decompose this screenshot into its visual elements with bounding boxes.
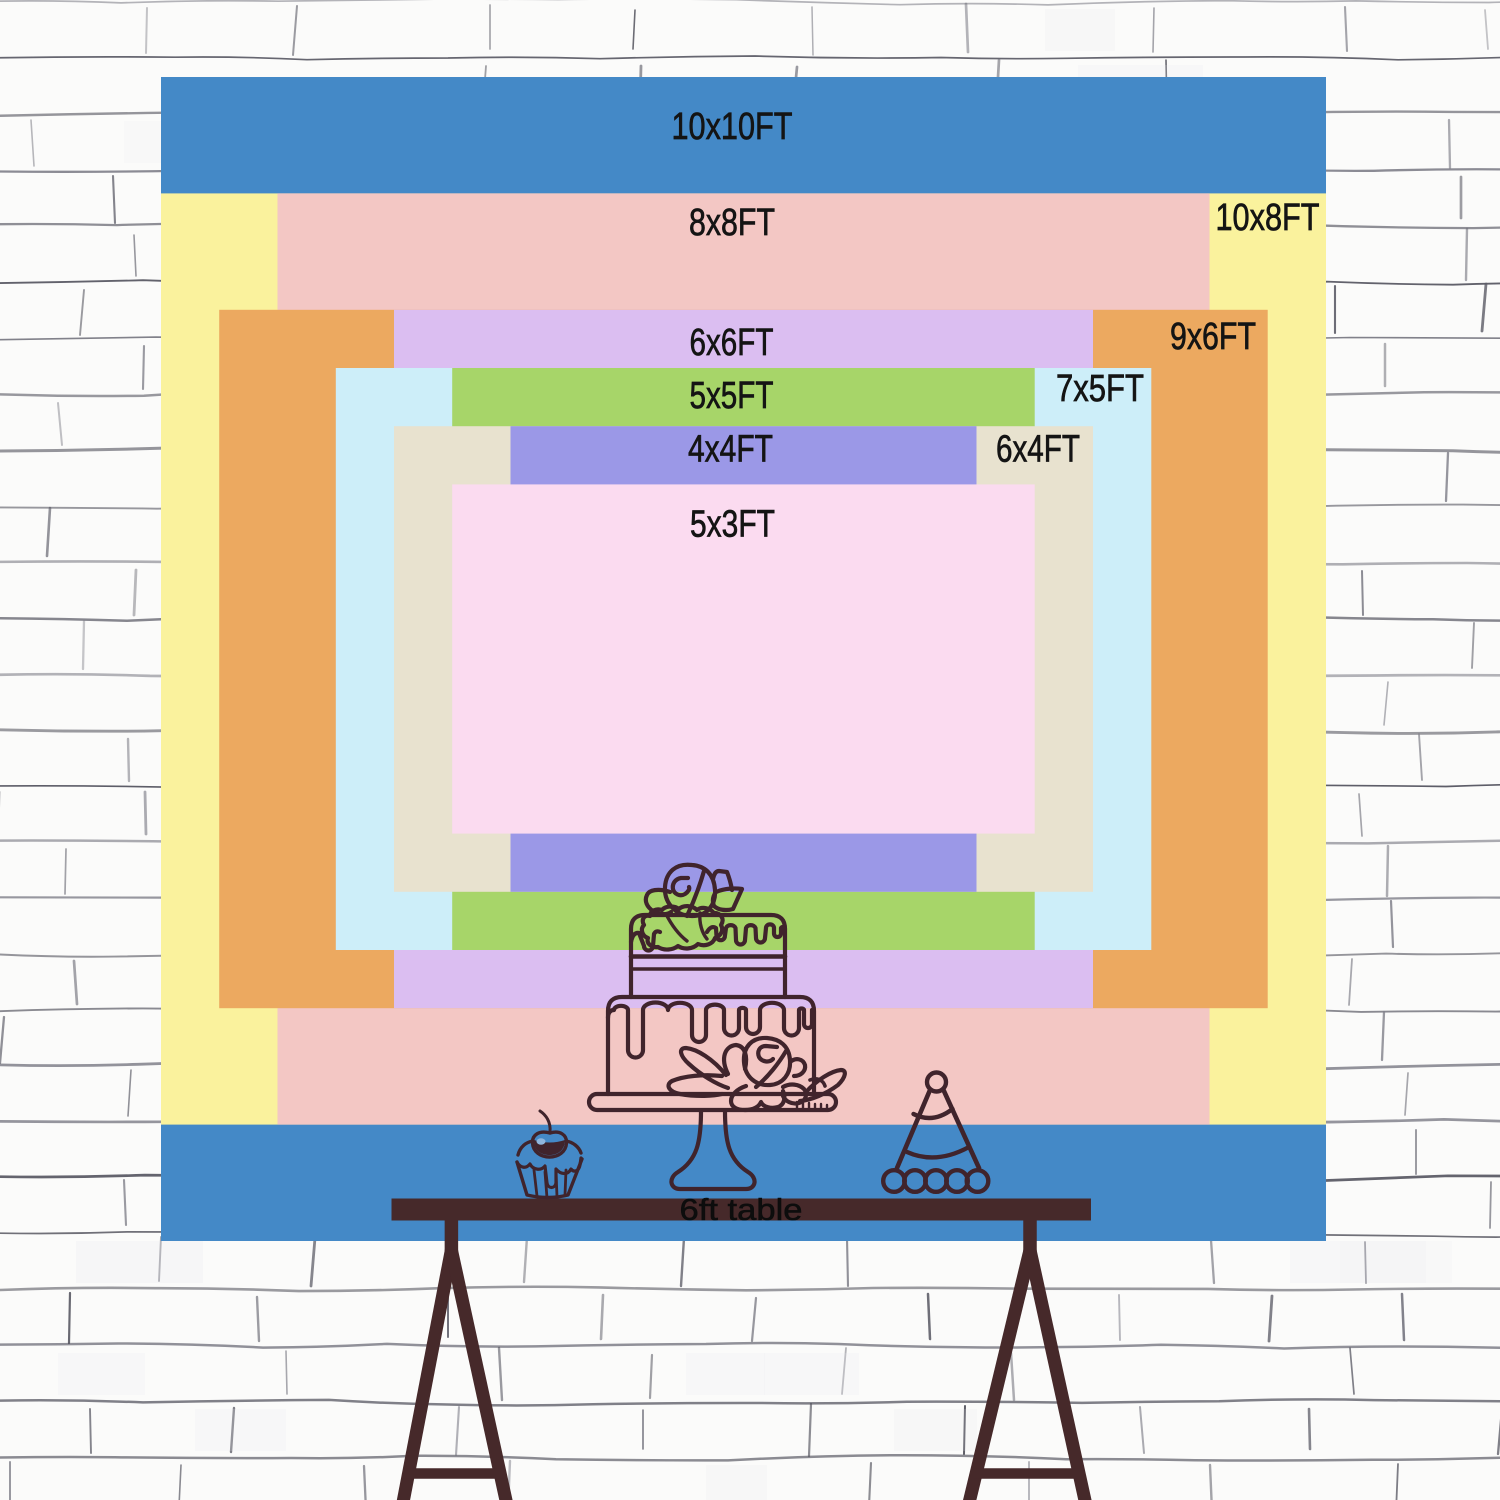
- svg-text:5x3FT: 5x3FT: [690, 504, 775, 546]
- svg-text:4x4FT: 4x4FT: [688, 429, 773, 471]
- svg-text:6x4FT: 6x4FT: [996, 429, 1080, 471]
- svg-text:10x8FT: 10x8FT: [1216, 197, 1320, 239]
- svg-text:8x8FT: 8x8FT: [689, 202, 775, 244]
- svg-text:9x6FT: 9x6FT: [1170, 316, 1256, 358]
- svg-text:6x6FT: 6x6FT: [690, 322, 774, 364]
- svg-text:5x5FT: 5x5FT: [690, 375, 774, 417]
- svg-text:10x10FT: 10x10FT: [672, 106, 793, 148]
- svg-text:7x5FT: 7x5FT: [1056, 368, 1144, 410]
- svg-text:6ft table: 6ft table: [680, 1192, 803, 1227]
